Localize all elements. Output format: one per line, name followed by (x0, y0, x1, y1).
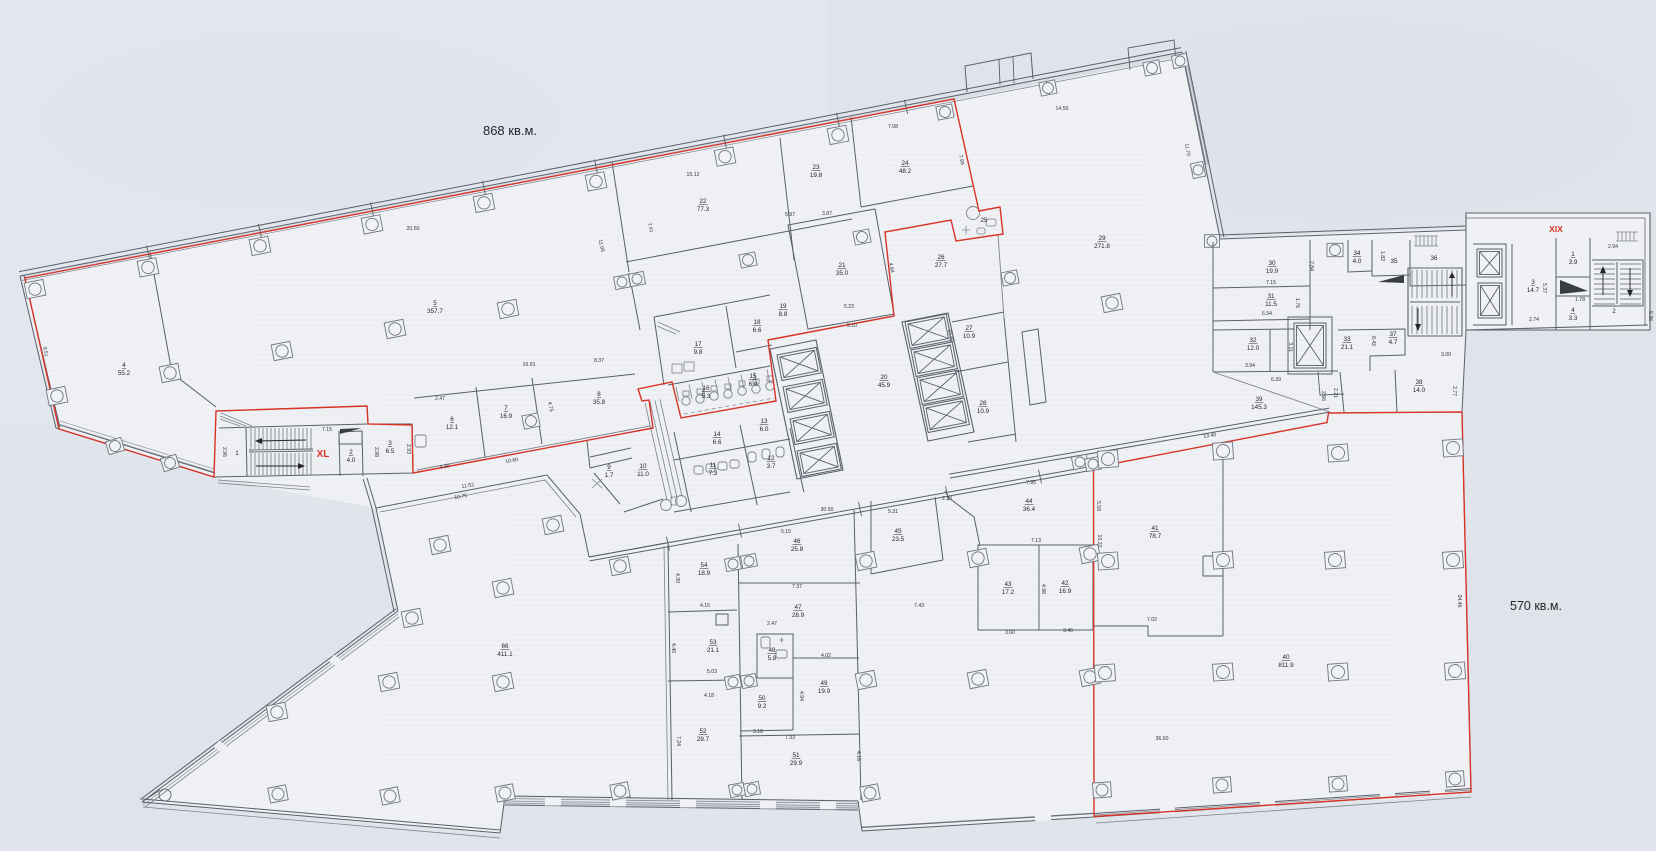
svg-text:5.3: 5.3 (702, 393, 711, 400)
svg-text:35.0: 35.0 (836, 270, 849, 277)
svg-text:7.15: 7.15 (322, 427, 332, 433)
svg-text:7.08: 7.08 (888, 124, 898, 130)
svg-text:22: 22 (699, 198, 707, 205)
svg-text:4.0: 4.0 (347, 457, 356, 464)
svg-text:16.9: 16.9 (500, 413, 513, 420)
svg-text:7.15: 7.15 (1266, 280, 1276, 286)
svg-text:34.46: 34.46 (1456, 595, 1462, 608)
svg-text:16.9: 16.9 (1059, 588, 1072, 595)
svg-text:2.93: 2.93 (405, 444, 411, 454)
svg-text:48.2: 48.2 (899, 168, 912, 175)
svg-text:51: 51 (792, 752, 800, 759)
svg-text:10.22: 10.22 (1096, 535, 1102, 548)
svg-text:4.18: 4.18 (704, 693, 714, 699)
svg-text:3.46: 3.46 (1063, 628, 1073, 634)
svg-text:14.0: 14.0 (1413, 387, 1426, 394)
svg-text:26: 26 (937, 254, 945, 261)
svg-text:11.5: 11.5 (1265, 301, 1277, 308)
svg-text:17: 17 (694, 341, 702, 348)
svg-text:811.9: 811.9 (1278, 662, 1294, 669)
svg-text:3.9: 3.9 (1569, 259, 1578, 266)
svg-text:23: 23 (812, 164, 820, 171)
svg-text:44: 44 (1025, 498, 1033, 505)
svg-text:411.1: 411.1 (497, 651, 513, 658)
svg-text:36.4: 36.4 (1023, 506, 1036, 513)
svg-text:1.76: 1.76 (1294, 298, 1300, 308)
svg-text:XIX: XIX (1549, 224, 1563, 234)
svg-text:52: 52 (699, 728, 707, 735)
svg-text:4.7: 4.7 (1389, 339, 1398, 346)
svg-text:10: 10 (639, 463, 647, 470)
svg-text:48: 48 (768, 647, 776, 654)
svg-text:21.1: 21.1 (707, 647, 720, 654)
svg-text:29: 29 (1098, 235, 1106, 242)
svg-text:5.59: 5.59 (1095, 501, 1101, 511)
svg-text:7.43: 7.43 (914, 603, 924, 609)
svg-text:53: 53 (709, 639, 717, 646)
svg-text:25: 25 (980, 217, 988, 224)
svg-text:42: 42 (1061, 580, 1069, 587)
svg-text:38: 38 (1415, 379, 1423, 386)
svg-text:28.9: 28.9 (792, 612, 805, 619)
svg-text:7: 7 (504, 405, 508, 412)
svg-text:2.77: 2.77 (1451, 386, 1457, 396)
svg-text:11.0: 11.0 (637, 471, 649, 478)
svg-text:7.13: 7.13 (1031, 538, 1041, 544)
svg-text:5.10: 5.10 (847, 323, 857, 329)
svg-text:7.37: 7.37 (792, 584, 802, 590)
svg-text:1.78: 1.78 (1575, 297, 1585, 303)
svg-text:2: 2 (1612, 308, 1616, 315)
svg-text:32: 32 (1249, 337, 1257, 344)
svg-text:8: 8 (597, 391, 601, 398)
svg-text:34: 34 (1353, 250, 1361, 257)
svg-text:5.15: 5.15 (781, 529, 791, 535)
svg-text:4.0: 4.0 (1353, 258, 1362, 265)
svg-text:6: 6 (450, 416, 454, 423)
svg-text:2.47: 2.47 (767, 621, 777, 627)
svg-text:5.03: 5.03 (707, 669, 717, 675)
svg-text:3.00: 3.00 (1441, 352, 1451, 358)
svg-text:37: 37 (1389, 331, 1397, 338)
svg-text:47: 47 (794, 604, 802, 611)
svg-text:46: 46 (793, 538, 801, 545)
svg-text:1: 1 (235, 450, 239, 457)
svg-text:3: 3 (1531, 279, 1535, 286)
svg-text:54: 54 (700, 562, 708, 569)
svg-text:31: 31 (1267, 293, 1275, 300)
svg-text:36: 36 (1430, 255, 1438, 262)
svg-text:4.02: 4.02 (821, 653, 831, 659)
svg-text:XL: XL (317, 449, 330, 460)
svg-text:2.98: 2.98 (373, 447, 379, 457)
svg-text:3.60: 3.60 (1005, 630, 1015, 636)
svg-text:3: 3 (388, 440, 392, 447)
svg-text:18: 18 (753, 319, 761, 326)
svg-text:19.9: 19.9 (818, 688, 831, 695)
svg-text:14.50: 14.50 (1056, 106, 1069, 112)
svg-text:9.8: 9.8 (694, 349, 703, 356)
svg-text:5: 5 (433, 300, 437, 307)
svg-text:15.12: 15.12 (687, 172, 700, 178)
svg-text:78.7: 78.7 (1149, 533, 1162, 540)
svg-text:39: 39 (1255, 396, 1263, 403)
svg-text:25.8: 25.8 (791, 546, 804, 553)
svg-text:15: 15 (749, 373, 757, 380)
svg-text:35: 35 (1390, 258, 1398, 265)
svg-text:4.16: 4.16 (855, 751, 861, 761)
svg-text:3.94: 3.94 (1245, 363, 1255, 369)
svg-text:3.18: 3.18 (753, 729, 763, 735)
svg-text:55.2: 55.2 (118, 370, 131, 377)
svg-text:23.5: 23.5 (892, 536, 905, 543)
svg-text:4.15: 4.15 (700, 603, 710, 609)
svg-text:4.30: 4.30 (674, 573, 680, 583)
svg-text:50: 50 (758, 695, 766, 702)
svg-text:16.91: 16.91 (523, 362, 536, 368)
svg-text:3.87: 3.87 (822, 211, 832, 217)
svg-text:12.0: 12.0 (1247, 345, 1260, 352)
svg-text:20: 20 (880, 374, 888, 381)
svg-text:17.2: 17.2 (1002, 589, 1015, 596)
svg-text:45: 45 (894, 528, 902, 535)
svg-text:2.47: 2.47 (435, 396, 445, 402)
svg-text:4: 4 (1571, 307, 1575, 314)
svg-text:2.21: 2.21 (1332, 388, 1338, 398)
svg-text:10.9: 10.9 (977, 408, 990, 415)
svg-text:5.97: 5.97 (785, 212, 795, 218)
svg-text:7.95: 7.95 (1026, 480, 1036, 486)
svg-text:5.36: 5.36 (1647, 311, 1653, 321)
svg-text:29.9: 29.9 (790, 760, 803, 767)
svg-text:16: 16 (702, 385, 710, 392)
svg-text:4.94: 4.94 (798, 691, 804, 701)
svg-text:77.3: 77.3 (697, 206, 710, 213)
svg-text:7.3: 7.3 (709, 470, 718, 477)
svg-text:570 кв.м.: 570 кв.м. (1510, 599, 1562, 613)
svg-text:3.3: 3.3 (1569, 315, 1578, 322)
svg-text:36.60: 36.60 (1156, 736, 1169, 742)
svg-text:271.8: 271.8 (1094, 243, 1110, 250)
svg-text:8.8: 8.8 (779, 311, 788, 318)
svg-text:20.50: 20.50 (407, 226, 420, 232)
svg-text:24: 24 (901, 160, 909, 167)
svg-text:35.8: 35.8 (593, 399, 606, 406)
svg-text:2.66: 2.66 (1320, 391, 1326, 401)
svg-text:2.74: 2.74 (1529, 317, 1539, 323)
svg-text:7.24: 7.24 (675, 736, 681, 746)
svg-text:9: 9 (607, 464, 611, 471)
svg-text:2: 2 (349, 449, 353, 456)
svg-text:19.8: 19.8 (810, 172, 823, 179)
svg-text:6.54: 6.54 (1262, 311, 1272, 317)
svg-text:33: 33 (1343, 336, 1351, 343)
svg-text:6.6: 6.6 (713, 439, 722, 446)
svg-text:10.9: 10.9 (963, 333, 976, 340)
svg-text:45.9: 45.9 (878, 382, 891, 389)
svg-text:868 кв.м.: 868 кв.м. (483, 123, 537, 138)
svg-text:43: 43 (1004, 581, 1012, 588)
svg-text:2.84: 2.84 (1308, 261, 1314, 271)
svg-text:5.23: 5.23 (844, 304, 854, 310)
svg-text:6.6: 6.6 (753, 327, 762, 334)
svg-text:9.2: 9.2 (758, 703, 767, 710)
svg-text:7.02: 7.02 (1147, 617, 1157, 623)
svg-text:28.7: 28.7 (697, 736, 710, 743)
svg-text:5.37: 5.37 (1541, 283, 1547, 293)
svg-text:12: 12 (767, 455, 775, 462)
svg-text:27: 27 (965, 325, 973, 332)
svg-text:2.96: 2.96 (221, 447, 227, 457)
svg-text:3.11: 3.11 (1287, 342, 1293, 352)
svg-text:18.9: 18.9 (698, 570, 711, 577)
svg-text:6.39: 6.39 (1271, 377, 1281, 383)
svg-text:19.9: 19.9 (1266, 268, 1279, 275)
svg-text:40: 40 (1282, 654, 1290, 661)
svg-text:30: 30 (1268, 260, 1276, 267)
svg-text:4.98: 4.98 (1040, 584, 1046, 594)
svg-text:5.8: 5.8 (768, 655, 777, 662)
svg-text:8.37: 8.37 (594, 358, 604, 364)
svg-text:2.10: 2.10 (942, 496, 952, 502)
svg-text:49: 49 (820, 680, 828, 687)
svg-text:21.1: 21.1 (1341, 344, 1354, 351)
svg-text:14.7: 14.7 (1527, 287, 1540, 294)
svg-text:13: 13 (760, 418, 768, 425)
svg-text:41: 41 (1151, 525, 1159, 532)
svg-text:19: 19 (779, 303, 787, 310)
svg-text:7.33: 7.33 (785, 735, 795, 741)
svg-text:4.40: 4.40 (670, 643, 676, 653)
svg-text:6.0: 6.0 (760, 426, 769, 433)
svg-text:1.7: 1.7 (605, 472, 614, 479)
svg-text:21: 21 (838, 262, 846, 269)
svg-text:145.3: 145.3 (1251, 404, 1267, 411)
svg-text:5.31: 5.31 (888, 509, 898, 515)
svg-text:6.5: 6.5 (386, 448, 395, 455)
svg-text:1: 1 (1571, 251, 1575, 258)
svg-text:8.42: 8.42 (1370, 336, 1376, 346)
svg-text:1.82: 1.82 (1379, 251, 1385, 261)
svg-text:4: 4 (122, 362, 126, 369)
svg-text:6.0: 6.0 (749, 381, 758, 388)
svg-text:30.50: 30.50 (821, 507, 834, 513)
svg-text:28: 28 (979, 400, 987, 407)
svg-text:11: 11 (710, 462, 717, 469)
svg-text:14: 14 (713, 431, 721, 438)
svg-text:66: 66 (501, 643, 509, 650)
svg-text:27.7: 27.7 (935, 262, 948, 269)
svg-text:3.7: 3.7 (767, 463, 776, 470)
svg-text:357.7: 357.7 (427, 308, 443, 315)
svg-text:12.1: 12.1 (446, 424, 459, 431)
svg-text:2.94: 2.94 (1608, 244, 1618, 250)
